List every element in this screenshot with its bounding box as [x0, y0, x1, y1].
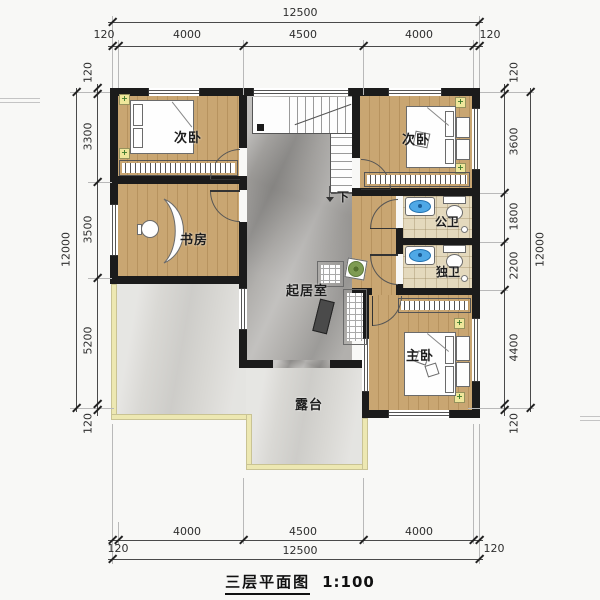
edge-mark	[0, 102, 40, 103]
terrace-parapet-left	[111, 284, 117, 420]
stairs-edge-line	[252, 97, 253, 133]
extension-line	[243, 478, 244, 544]
stairs-edge-line	[330, 133, 331, 193]
dimension-line	[504, 84, 505, 416]
drawing-title: 三层平面图1:100	[0, 571, 600, 592]
dim-label: 5200	[82, 323, 95, 359]
plant-icon	[348, 261, 364, 277]
dim-label: 12000	[60, 230, 73, 270]
wall	[239, 180, 247, 190]
dim-label: 4400	[508, 330, 521, 366]
stairs-down-arrow-stem	[329, 186, 330, 197]
wall-lamp-icon	[454, 318, 465, 329]
terrace-parapet-bottom-center	[246, 464, 368, 470]
door-leaf	[210, 179, 240, 181]
stairs-edge-line	[252, 133, 352, 134]
dim-label: 120	[82, 55, 95, 91]
dimension-line	[108, 22, 483, 23]
wall	[110, 276, 247, 284]
room-label-bedroom-tr: 次卧	[392, 133, 440, 149]
dim-label: 12000	[534, 230, 547, 270]
floor-living-terrace-opening	[273, 360, 330, 368]
window	[388, 88, 442, 96]
window	[472, 108, 480, 170]
dim-label: 120	[480, 542, 508, 555]
extension-line	[88, 182, 112, 183]
bed-pillow	[445, 139, 454, 164]
wall	[239, 222, 247, 288]
dim-label: 4000	[170, 28, 204, 41]
extension-line	[363, 478, 364, 544]
floor-plan-canvas: 下 次卧 书房	[0, 0, 600, 600]
extension-line	[473, 424, 474, 544]
wall	[402, 288, 480, 295]
room-label-bath-private: 独卫	[424, 264, 472, 280]
door-leaf	[370, 228, 398, 230]
window	[472, 318, 480, 382]
toilet-tank	[443, 196, 466, 204]
dim-label: 1800	[508, 199, 521, 235]
extension-line	[479, 16, 480, 88]
drawing-scale: 1:100	[322, 573, 375, 591]
bed-pillow	[133, 104, 143, 126]
window	[253, 88, 349, 96]
dimension-line	[108, 46, 483, 47]
window	[362, 338, 369, 392]
room-label-living: 起居室	[278, 284, 336, 300]
room-label-bedroom-tl: 次卧	[164, 131, 212, 147]
nightstand	[456, 117, 470, 138]
terrace-parapet-step	[246, 414, 252, 470]
dim-label: 120	[508, 55, 521, 91]
door-leaf	[370, 254, 398, 256]
stairs-down-arrow-head	[326, 197, 334, 202]
window	[388, 410, 450, 418]
wardrobe	[364, 172, 470, 187]
desk-chair	[141, 220, 159, 238]
dim-label: 120	[476, 28, 504, 41]
room-label-study: 书房	[170, 233, 218, 249]
dim-label: 120	[82, 406, 95, 442]
room-label-bath-public: 公卫	[422, 214, 472, 230]
window	[110, 204, 118, 256]
wardrobe	[398, 298, 471, 313]
bed-pillow	[445, 366, 454, 393]
dimension-line	[108, 540, 483, 541]
dim-label: 120	[104, 542, 132, 555]
bed-pillow	[133, 128, 143, 148]
dim-label: 12500	[265, 544, 335, 557]
terrace-parapet-bottom-left	[111, 414, 252, 420]
extension-line	[112, 16, 113, 88]
dimension-line	[530, 88, 531, 412]
nightstand	[456, 139, 470, 160]
door-leaf	[372, 296, 374, 326]
extension-line	[363, 40, 364, 95]
drawing-title-text: 三层平面图	[225, 573, 310, 595]
dim-label: 120	[90, 28, 118, 41]
stairs-newel-post	[257, 124, 264, 131]
door-leaf	[361, 189, 391, 191]
dimension-line	[97, 84, 98, 416]
nightstand	[456, 336, 470, 361]
wall	[396, 238, 480, 245]
extension-line	[243, 40, 244, 95]
edge-mark	[0, 98, 40, 99]
sink-drain-dot	[418, 204, 422, 208]
terrace-floor-center	[246, 368, 362, 464]
dim-label: 4500	[286, 28, 320, 41]
door-leaf	[210, 190, 240, 192]
sofa	[343, 289, 367, 345]
wall	[352, 88, 360, 158]
sink-drain-dot	[418, 253, 422, 257]
dim-label: 2200	[508, 248, 521, 284]
dimension-line	[108, 559, 483, 560]
desk-chair-back	[137, 224, 142, 235]
room-label-terrace: 露台	[280, 398, 338, 414]
dim-label: 4000	[170, 525, 204, 538]
dim-label: 12500	[265, 6, 335, 19]
edge-mark	[580, 416, 600, 417]
wardrobe	[119, 160, 238, 176]
dimension-line	[76, 88, 77, 412]
dim-label: 3300	[82, 119, 95, 155]
wall	[239, 360, 273, 368]
extension-line	[88, 278, 112, 279]
stairs-down-label: 下	[334, 189, 352, 205]
terrace-floor-left	[117, 284, 246, 414]
dim-label: 120	[508, 406, 521, 442]
room-label-master: 主卧	[396, 349, 444, 365]
wall	[239, 88, 247, 148]
wall-lamp-icon	[455, 97, 466, 108]
window	[148, 88, 200, 96]
dim-label: 4000	[402, 28, 436, 41]
terrace-glass-door	[239, 288, 247, 330]
dim-label: 4000	[402, 525, 436, 538]
dim-label: 4500	[286, 525, 320, 538]
edge-mark	[580, 420, 600, 421]
terrace-parapet-right	[362, 418, 368, 470]
nightstand	[456, 362, 470, 387]
dim-label: 3500	[82, 212, 95, 248]
wall-lamp-icon	[119, 148, 130, 159]
dim-label: 3600	[508, 124, 521, 160]
stairs-right-flight	[331, 133, 352, 193]
wall-lamp-icon	[119, 94, 130, 105]
toilet-tank	[443, 245, 466, 253]
